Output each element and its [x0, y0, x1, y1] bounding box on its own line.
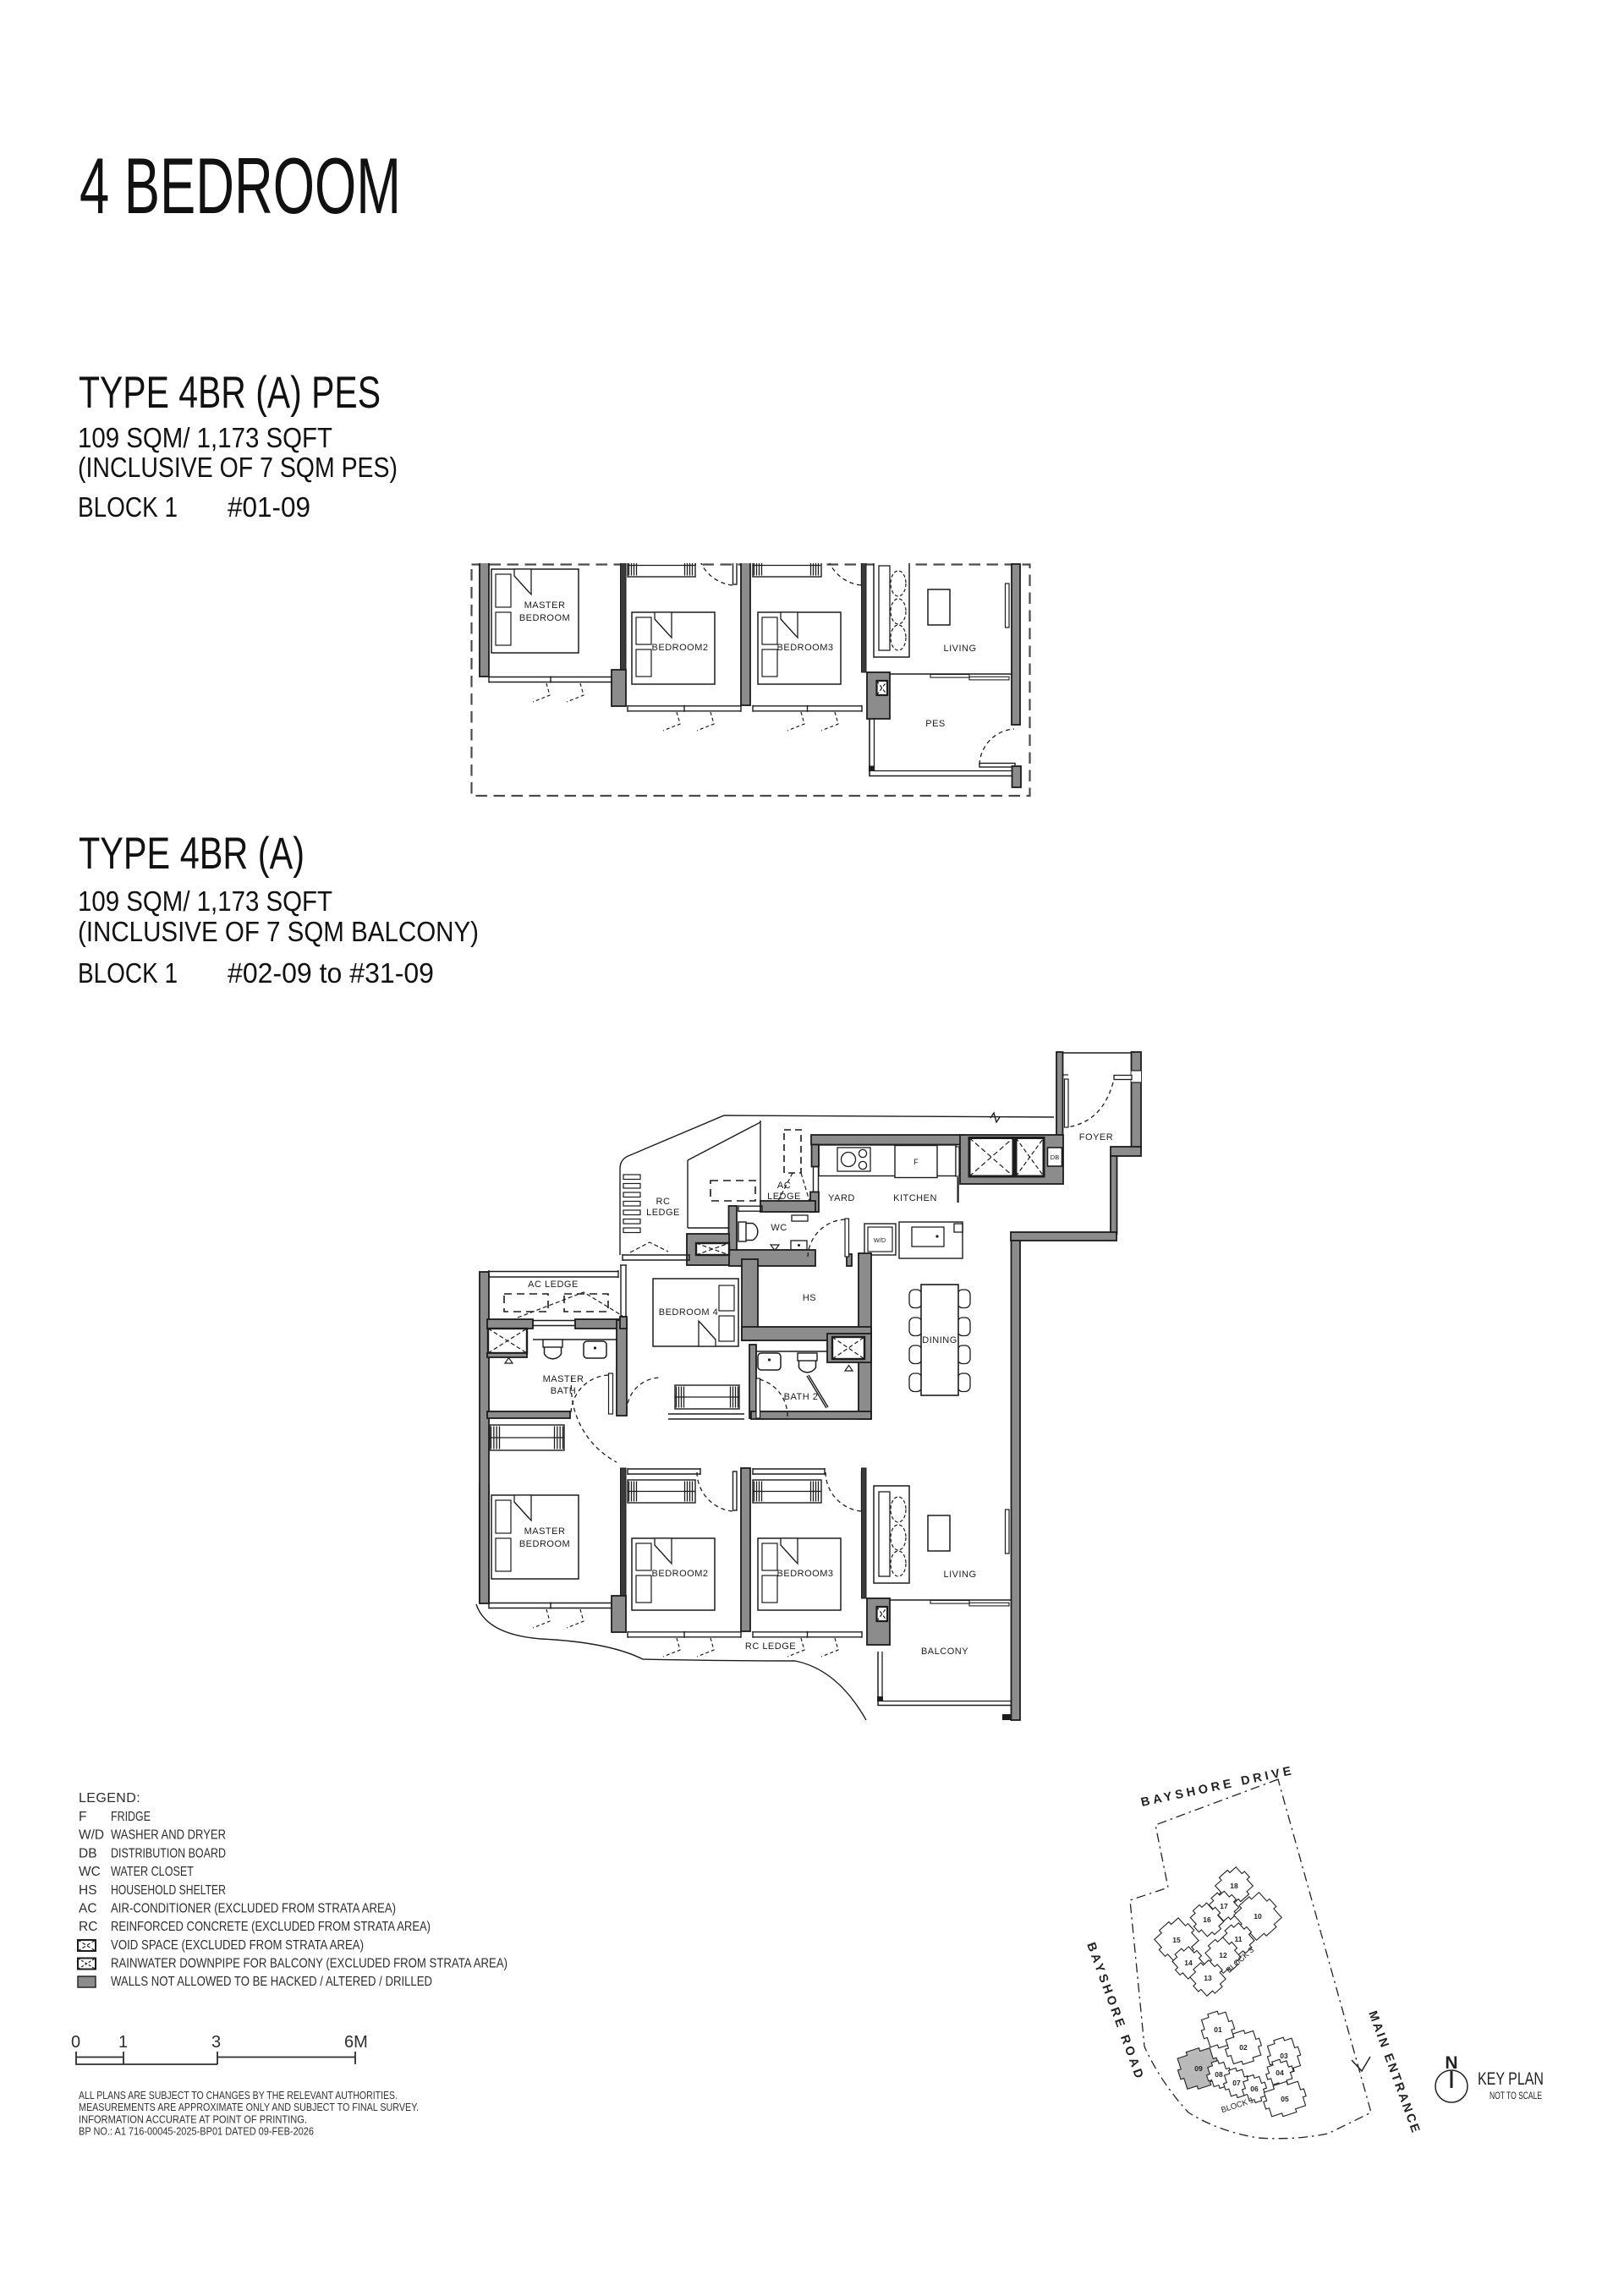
- svg-text:FOYER: FOYER: [1079, 1132, 1113, 1143]
- svg-text:6M: 6M: [344, 2033, 368, 2052]
- svg-text:17: 17: [1220, 1902, 1228, 1910]
- svg-text:4 BEDROOM: 4 BEDROOM: [80, 141, 401, 230]
- svg-text:14: 14: [1184, 1959, 1193, 1967]
- svg-text:KEY PLAN: KEY PLAN: [1478, 2069, 1544, 2089]
- svg-text:18: 18: [1230, 1882, 1238, 1890]
- svg-text:WASHER AND DRYER: WASHER AND DRYER: [111, 1828, 226, 1843]
- svg-text:WC: WC: [79, 1865, 101, 1879]
- svg-text:AC: AC: [79, 1902, 97, 1916]
- svg-text:RC: RC: [79, 1920, 97, 1934]
- svg-text:WATER CLOSET: WATER CLOSET: [111, 1865, 194, 1879]
- svg-text:3: 3: [211, 2033, 221, 2052]
- svg-text:BLOCK 1: BLOCK 1: [78, 957, 178, 989]
- svg-text:BP NO.: A1 716-00045-2025-BP01: BP NO.: A1 716-00045-2025-BP01 DATED 09-…: [79, 2125, 314, 2138]
- svg-text:(INCLUSIVE OF 7 SQM PES): (INCLUSIVE OF 7 SQM PES): [78, 452, 398, 483]
- svg-text:W/D: W/D: [874, 1236, 886, 1244]
- svg-text:08: 08: [1215, 2070, 1223, 2079]
- svg-text:10: 10: [1254, 1912, 1262, 1921]
- svg-text:N: N: [1445, 2053, 1457, 2073]
- svg-text:DB: DB: [79, 1846, 97, 1860]
- svg-text:11: 11: [1235, 1935, 1243, 1943]
- svg-text:MASTER: MASTER: [543, 1374, 584, 1384]
- svg-text:RC LEDGE: RC LEDGE: [745, 1641, 796, 1652]
- svg-text:07: 07: [1232, 2079, 1241, 2087]
- svg-text:LEDGE: LEDGE: [646, 1208, 680, 1218]
- svg-text:PES: PES: [925, 719, 946, 729]
- svg-text:02: 02: [1239, 2043, 1248, 2052]
- svg-text:ALL PLANS ARE SUBJECT TO CHANG: ALL PLANS ARE SUBJECT TO CHANGES BY THE …: [79, 2089, 398, 2101]
- svg-text:09: 09: [1194, 2064, 1203, 2073]
- svg-text:AC LEDGE: AC LEDGE: [528, 1280, 579, 1290]
- svg-text:HS: HS: [803, 1293, 816, 1303]
- svg-text:01: 01: [1214, 2025, 1222, 2034]
- svg-text:BEDROOM 4: BEDROOM 4: [659, 1307, 719, 1318]
- svg-text:04: 04: [1276, 2069, 1284, 2077]
- svg-text:W/D: W/D: [79, 1828, 104, 1843]
- svg-text:BALCONY: BALCONY: [921, 1647, 968, 1657]
- svg-text:BLOCK 1: BLOCK 1: [78, 491, 178, 523]
- svg-text:#02-09 to #31-09: #02-09 to #31-09: [228, 957, 434, 989]
- svg-text:KITCHEN: KITCHEN: [893, 1193, 937, 1203]
- svg-text:F: F: [79, 1810, 86, 1824]
- svg-text:MEASUREMENTS ARE APPROXIMATE O: MEASUREMENTS ARE APPROXIMATE ONLY AND SU…: [79, 2101, 419, 2113]
- svg-text:HOUSEHOLD SHELTER: HOUSEHOLD SHELTER: [111, 1883, 226, 1898]
- svg-text:VOID SPACE (EXCLUDED FROM STRA: VOID SPACE (EXCLUDED FROM STRATA AREA): [111, 1938, 364, 1953]
- svg-text:HS: HS: [79, 1883, 97, 1898]
- svg-text:NOT TO SCALE: NOT TO SCALE: [1490, 2091, 1542, 2101]
- svg-text:1: 1: [118, 2033, 128, 2052]
- svg-text:109 SQM/ 1,173 SQFT: 109 SQM/ 1,173 SQFT: [78, 885, 332, 917]
- svg-text:109 SQM/ 1,173 SQFT: 109 SQM/ 1,173 SQFT: [78, 422, 332, 453]
- svg-text:05: 05: [1281, 2095, 1289, 2103]
- svg-text:16: 16: [1203, 1915, 1211, 1924]
- svg-text:03: 03: [1280, 2052, 1288, 2060]
- svg-text:BATH 2: BATH 2: [784, 1392, 819, 1402]
- svg-text:BATH: BATH: [551, 1386, 577, 1396]
- svg-text:13: 13: [1204, 1974, 1212, 1982]
- svg-text:(INCLUSIVE OF 7 SQM BALCONY): (INCLUSIVE OF 7 SQM BALCONY): [78, 916, 479, 947]
- svg-text:DISTRIBUTION BOARD: DISTRIBUTION BOARD: [111, 1846, 226, 1860]
- svg-text:15: 15: [1172, 1936, 1181, 1944]
- svg-text:INFORMATION ACCURATE AT POINT: INFORMATION ACCURATE AT POINT OF PRINTIN…: [79, 2112, 307, 2125]
- svg-text:0: 0: [71, 2033, 80, 2052]
- svg-text:RC: RC: [656, 1197, 671, 1207]
- svg-text:DINING: DINING: [922, 1335, 957, 1345]
- svg-text:AIR-CONDITIONER (EXCLUDED FROM: AIR-CONDITIONER (EXCLUDED FROM STRATA AR…: [111, 1902, 396, 1916]
- svg-text:F: F: [913, 1158, 919, 1166]
- svg-text:WC: WC: [771, 1223, 787, 1233]
- svg-text:TYPE 4BR (A): TYPE 4BR (A): [79, 829, 304, 879]
- svg-text:YARD: YARD: [828, 1193, 855, 1203]
- svg-text:DB: DB: [1051, 1153, 1059, 1161]
- svg-text:AC: AC: [777, 1181, 791, 1191]
- svg-text:#01-09: #01-09: [228, 491, 310, 523]
- svg-text:REINFORCED CONCRETE (EXCLUDED: REINFORCED CONCRETE (EXCLUDED FROM STRAT…: [111, 1920, 431, 1934]
- svg-text:WALLS NOT ALLOWED TO BE HACKED: WALLS NOT ALLOWED TO BE HACKED / ALTERED…: [111, 1975, 432, 1989]
- svg-text:12: 12: [1219, 1951, 1227, 1959]
- svg-text:RAINWATER DOWNPIPE FOR BALCONY: RAINWATER DOWNPIPE FOR BALCONY (EXCLUDED…: [111, 1957, 507, 1971]
- svg-text:TYPE 4BR (A) PES: TYPE 4BR (A) PES: [79, 368, 381, 418]
- svg-text:FRIDGE: FRIDGE: [111, 1810, 151, 1824]
- svg-text:LEGEND:: LEGEND:: [79, 1791, 140, 1806]
- svg-text:06: 06: [1250, 2085, 1259, 2093]
